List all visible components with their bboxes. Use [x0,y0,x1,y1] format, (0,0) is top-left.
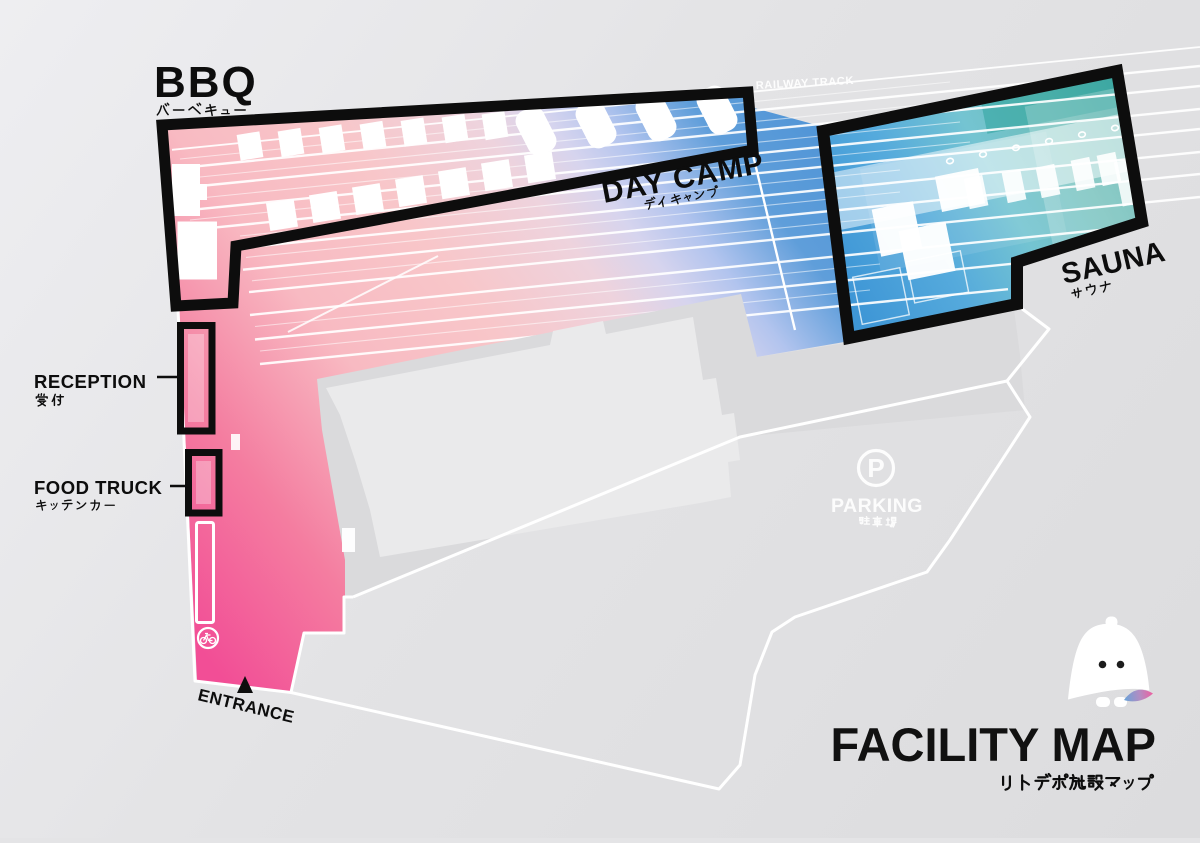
svg-text:PARKING: PARKING [831,495,923,517]
svg-text:FACILITY MAP: FACILITY MAP [830,718,1156,771]
svg-text:P: P [867,453,884,483]
svg-text:FOOD TRUCK: FOOD TRUCK [34,477,162,498]
svg-text:RECEPTION: RECEPTION [34,371,146,392]
svg-text:BBQ: BBQ [154,58,258,107]
